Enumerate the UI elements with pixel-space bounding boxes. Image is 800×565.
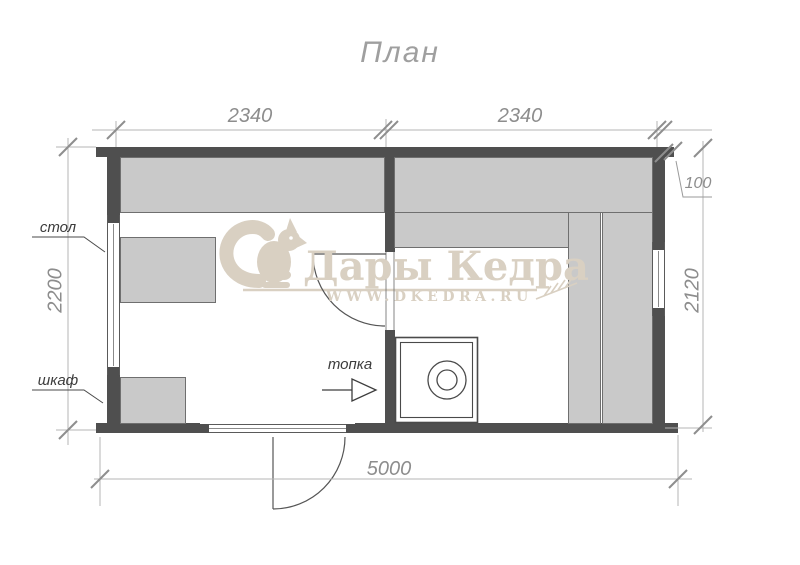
dim-roof-overhang: 100 [683,175,713,193]
cabinet [120,377,186,424]
label-firebox: топка [322,356,378,373]
entrance-door [273,437,345,509]
entrance-doorway [200,424,355,433]
dim-left-room-width: 2340 [210,105,290,128]
right-room-top-bench [394,157,653,213]
firebox-arrow-icon [322,379,376,401]
plan-title: План [0,36,800,70]
dim-right-room-depth: 2120 [682,251,705,331]
table [120,237,216,303]
dim-left-room-depth: 2200 [45,251,68,331]
partition-wall-lower-segment [385,330,395,423]
left-wall-lower-segment [107,375,120,433]
label-cabinet: шкаф [32,372,84,389]
right-room-side-bench-outer [602,212,653,424]
bottom-wall-right-segment [355,423,678,433]
floor-plan: План [0,0,800,565]
right-wall-window [653,242,665,316]
top-wall [96,147,674,157]
label-table: стол [32,219,84,236]
watermark-brand: Дары Кедра [303,243,589,290]
stove [396,338,478,423]
left-room-top-bench [120,157,385,213]
right-wall-lower-segment [652,316,665,433]
right-wall-upper-segment [652,147,665,242]
dim-total-width: 5000 [349,458,429,481]
left-wall-upper-segment [107,147,120,215]
watermark-url: WWW.DKEDRA.RU [326,289,533,305]
left-wall-window [108,215,120,375]
watermark-squirrel-icon [226,218,307,288]
dim-right-room-width: 2340 [480,105,560,128]
